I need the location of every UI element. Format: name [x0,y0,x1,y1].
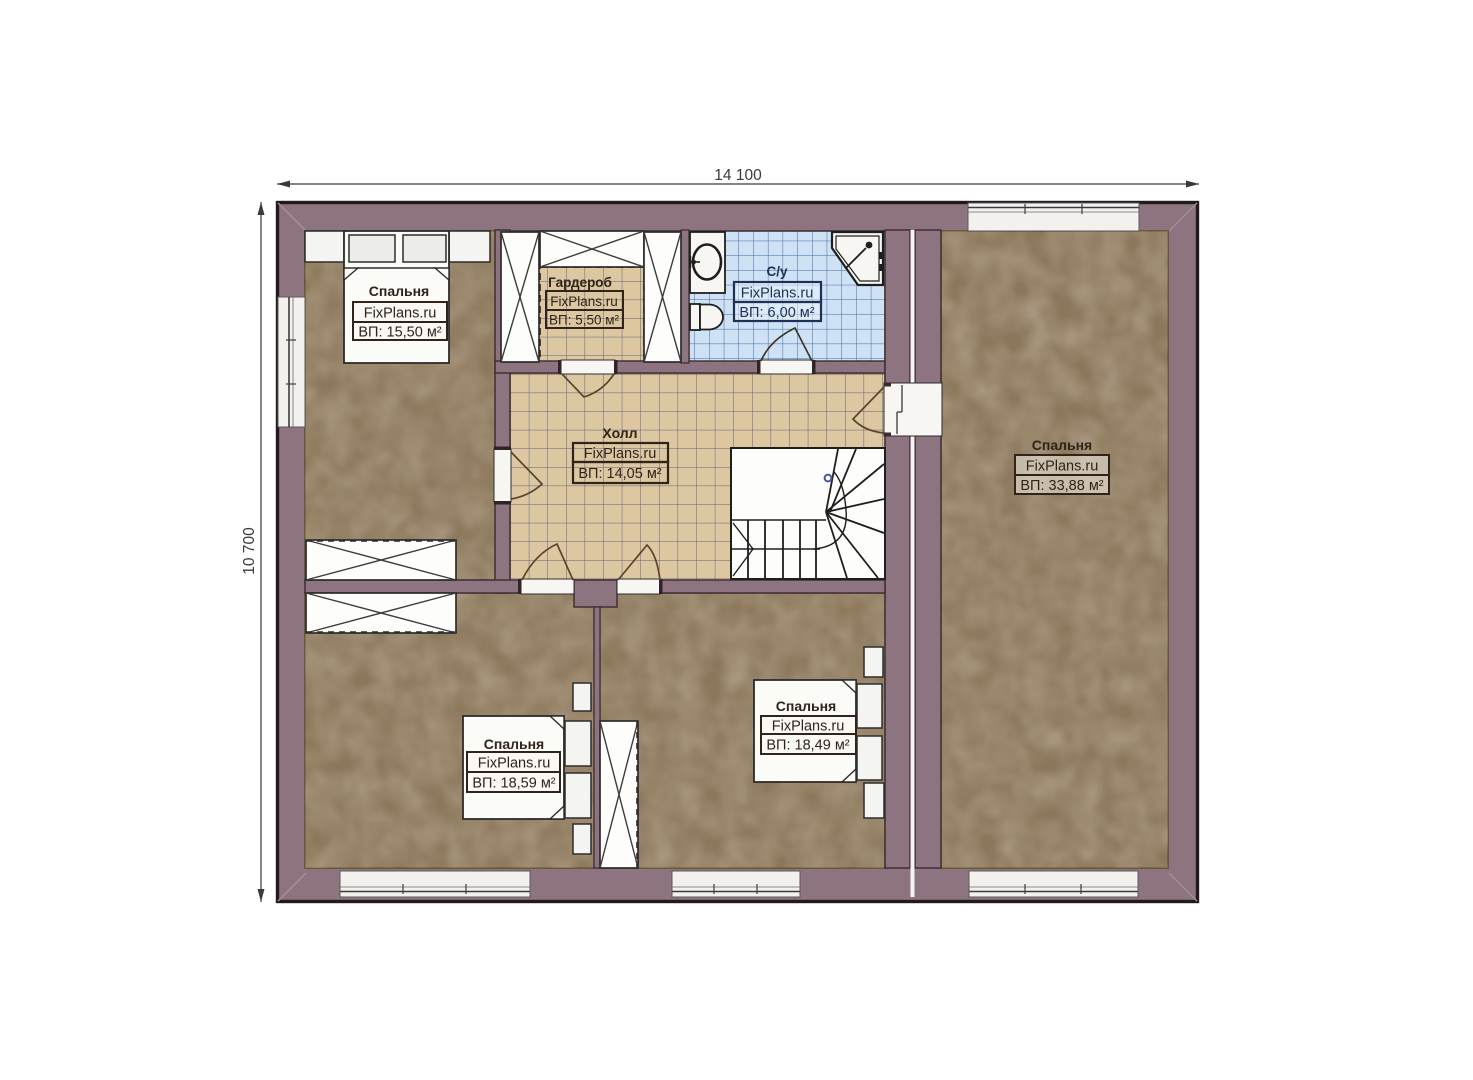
svg-text:ВП: 5,50 м²: ВП: 5,50 м² [549,313,620,328]
svg-text:14 100: 14 100 [714,167,762,184]
svg-text:ВП: 33,88 м²: ВП: 33,88 м² [1020,478,1103,494]
svg-text:FixPlans.ru: FixPlans.ru [364,306,437,322]
svg-text:Холл: Холл [602,425,637,441]
svg-text:Спальня: Спальня [1032,437,1092,453]
svg-text:FixPlans.ru: FixPlans.ru [478,756,551,772]
svg-text:ВП: 18,59 м²: ВП: 18,59 м² [472,776,555,792]
svg-text:Спальня: Спальня [484,736,544,752]
svg-text:Спальня: Спальня [369,283,429,299]
svg-text:10 700: 10 700 [241,527,258,575]
svg-text:FixPlans.ru: FixPlans.ru [550,294,618,309]
svg-text:FixPlans.ru: FixPlans.ru [1026,459,1099,475]
svg-text:Гардероб: Гардероб [548,275,612,290]
svg-text:ВП: 14,05 м²: ВП: 14,05 м² [578,466,661,482]
svg-text:С/у: С/у [766,264,788,279]
svg-text:FixPlans.ru: FixPlans.ru [741,286,814,302]
svg-text:FixPlans.ru: FixPlans.ru [772,719,845,735]
svg-text:ВП: 18,49 м²: ВП: 18,49 м² [766,738,849,754]
svg-text:Спальня: Спальня [776,698,836,714]
svg-text:ВП: 6,00 м²: ВП: 6,00 м² [739,305,814,321]
svg-text:FixPlans.ru: FixPlans.ru [584,446,657,462]
svg-text:ВП: 15,50 м²: ВП: 15,50 м² [358,325,441,341]
